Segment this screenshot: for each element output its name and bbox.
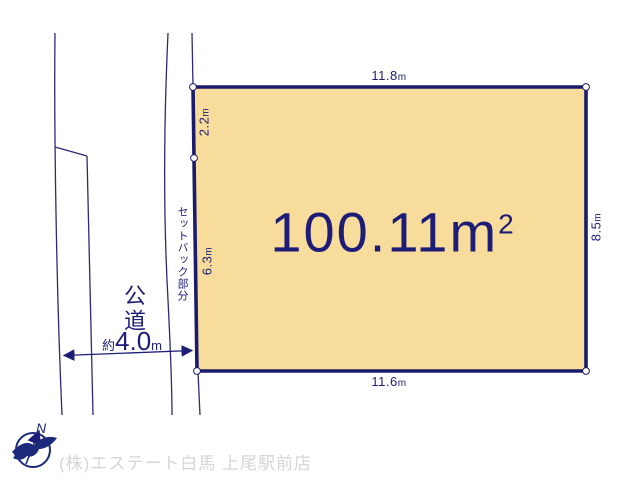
dim-top-value: 11.8 — [371, 68, 397, 83]
dim-left-upper: 2.2m — [197, 108, 212, 136]
dim-bottom-value: 11.6 — [371, 374, 397, 389]
dim-right-value: 8.5 — [589, 222, 604, 242]
dim-left-lower-value: 6.3 — [200, 256, 215, 276]
dim-top: 11.8m — [371, 68, 406, 83]
dim-right: 8.5m — [589, 213, 604, 241]
road-inner-boundary-line — [87, 156, 93, 415]
dim-bottom: 11.6m — [371, 374, 406, 389]
corner-marker — [194, 368, 201, 375]
dim-left-upper-value: 2.2 — [197, 117, 212, 137]
road-width-prefix: 約 — [102, 338, 115, 353]
road-width-label: 約4.0m — [102, 326, 162, 357]
compass-north-icon: N — [12, 420, 57, 467]
footer-company-name: (株)エステート白馬 上尾駅前店 — [59, 449, 312, 474]
plot-area-unit: m — [449, 201, 498, 264]
dim-bottom-unit: m — [398, 378, 407, 389]
plot-area-label: 100.11m2 — [270, 200, 513, 265]
dim-top-unit: m — [398, 72, 407, 83]
plot-edge-extension-bottom-line — [198, 372, 200, 415]
dim-left-lower-unit: m — [204, 247, 215, 256]
setback-label: セットバック部分 — [174, 206, 190, 301]
plot-area-sup: 2 — [498, 209, 514, 240]
road-width-value: 4.0 — [115, 326, 151, 356]
corner-marker — [191, 155, 198, 162]
corner-marker — [583, 368, 590, 375]
dim-left-lower: 6.3m — [200, 247, 215, 275]
road-left-boundary-line — [55, 33, 62, 415]
land-plot-diagram: N 11.8m 11.6m 8.5m 2.2m 6.3m セットバック部分 公道… — [0, 0, 640, 480]
corner-marker — [583, 84, 590, 91]
compass-n-label: N — [36, 420, 47, 436]
dim-left-upper-unit: m — [201, 108, 212, 117]
road-width-unit: m — [151, 338, 162, 353]
plot-edge-extension-top-line — [192, 33, 193, 87]
plot-area-value: 100.11 — [270, 201, 449, 264]
corner-marker — [190, 84, 197, 91]
boundary-jog-line — [55, 147, 87, 156]
dim-right-unit: m — [593, 213, 604, 222]
setback-boundary-line — [165, 33, 172, 415]
